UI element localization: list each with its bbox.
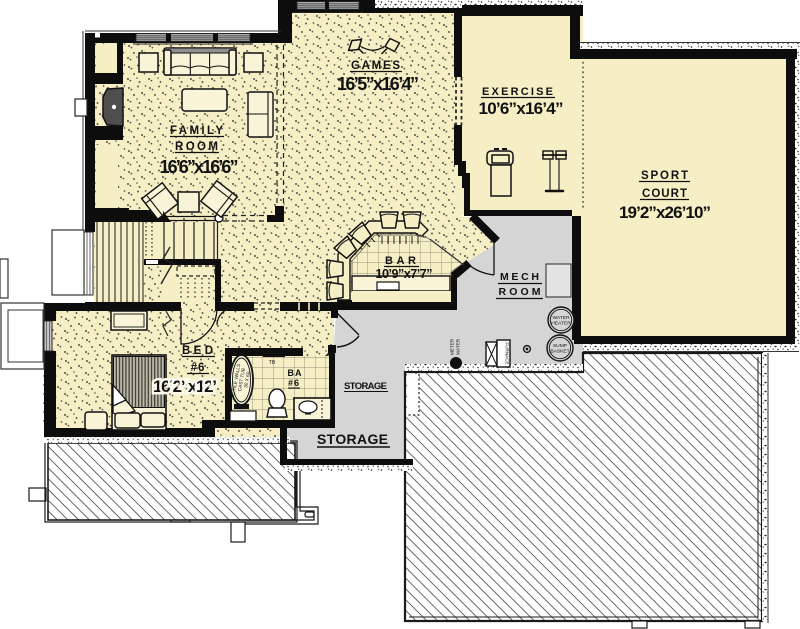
svg-text:BAR: BAR	[385, 255, 417, 267]
svg-text:16’5”x16’4”: 16’5”x16’4”	[337, 74, 419, 94]
svg-text:ROOM: ROOM	[499, 286, 542, 298]
svg-text:10’6”x16’4”: 10’6”x16’4”	[479, 99, 564, 118]
svg-text:EXERCISE: EXERCISE	[482, 86, 554, 98]
svg-text:BA: BA	[288, 368, 303, 378]
svg-text:16’6”x16’6”: 16’6”x16’6”	[160, 157, 239, 177]
svg-text:STORAGE: STORAGE	[317, 431, 389, 447]
svg-text:BED: BED	[182, 345, 214, 357]
svg-text:#6: #6	[191, 362, 206, 374]
svg-text:FAMILY: FAMILY	[170, 125, 224, 137]
svg-text:SUMP: SUMP	[553, 343, 567, 349]
svg-text:10’9”x7’7”: 10’9”x7’7”	[376, 267, 433, 281]
svg-text:SPORT: SPORT	[641, 170, 689, 182]
svg-text:GAMES: GAMES	[351, 60, 401, 72]
svg-text:FURNACE: FURNACE	[505, 342, 510, 364]
svg-text:METER: METER	[450, 338, 455, 355]
svg-text:BASKET: BASKET	[550, 349, 569, 355]
svg-text:TB: TB	[269, 360, 276, 366]
svg-text:#6: #6	[288, 378, 300, 388]
svg-text:WATER: WATER	[456, 338, 461, 355]
svg-text:ROOM: ROOM	[175, 141, 219, 153]
svg-text:16’2”x12’: 16’2”x12’	[153, 377, 217, 396]
svg-text:HEATER: HEATER	[551, 321, 571, 327]
svg-text:STORAGE: STORAGE	[344, 381, 388, 392]
svg-text:WATER: WATER	[552, 315, 570, 321]
svg-text:19’2”x26’10”: 19’2”x26’10”	[619, 203, 711, 222]
svg-text:COURT: COURT	[642, 188, 688, 200]
